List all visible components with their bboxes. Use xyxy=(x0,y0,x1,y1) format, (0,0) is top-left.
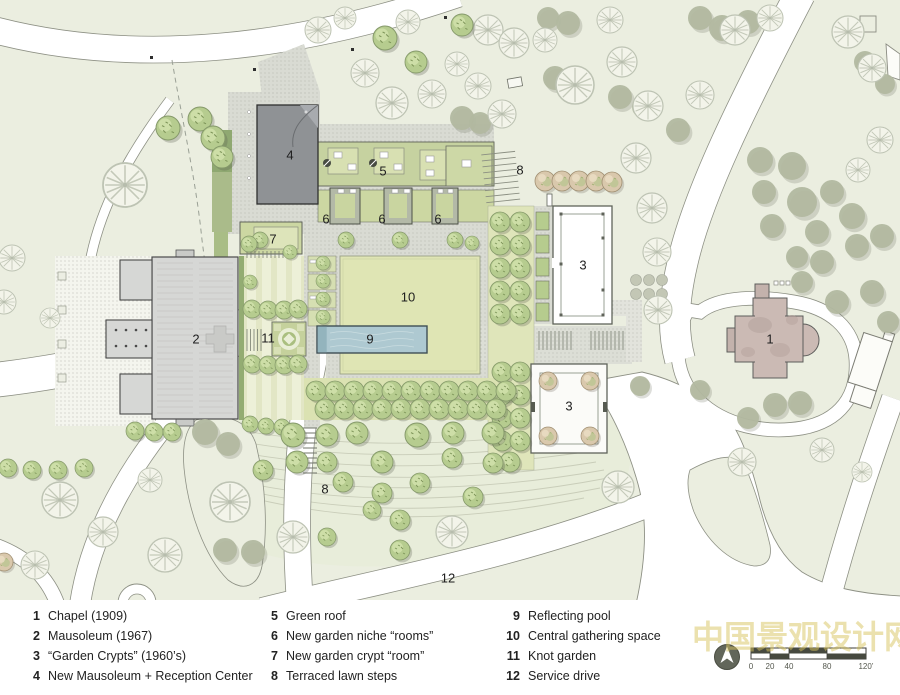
plan-marker-pool: 9 xyxy=(366,333,373,346)
plan-marker-crypt-room: 7 xyxy=(269,233,276,246)
legend-item-gathering: 10Central gathering space xyxy=(502,626,661,646)
legend-label: New garden crypt “room” xyxy=(286,649,424,663)
legend-item-crypt-room: 7New garden crypt “room” xyxy=(260,646,433,666)
legend-column-1: 1Chapel (1909) 2Mausoleum (1967) 3“Garde… xyxy=(22,606,253,686)
plan-marker-mausoleum: 2 xyxy=(192,333,199,346)
legend-label: Mausoleum (1967) xyxy=(48,629,152,643)
legend-label: Service drive xyxy=(528,669,600,683)
legend-label: New garden niche “rooms” xyxy=(286,629,433,643)
legend-label: Green roof xyxy=(286,609,346,623)
knot-garden xyxy=(272,322,306,356)
plan-marker-garden-crypts-upper: 3 xyxy=(579,259,586,272)
legend-num: 4 xyxy=(22,669,40,683)
plan-marker-green-roof: 5 xyxy=(379,165,386,178)
scale-tick-40: 40 xyxy=(785,662,794,671)
legend-column-2: 5Green roof 6New garden niche “rooms” 7N… xyxy=(260,606,433,686)
legend-item-green-roof: 5Green roof xyxy=(260,606,433,626)
scale-tick-120: 120’ xyxy=(858,662,873,671)
legend-num: 2 xyxy=(22,629,40,643)
legend-item-new-mausoleum: 4New Mausoleum + Reception Center xyxy=(22,666,253,686)
legend-label: Knot garden xyxy=(528,649,596,663)
legend-num: 11 xyxy=(502,649,520,663)
legend-label: New Mausoleum + Reception Center xyxy=(48,669,253,683)
site-plan-page: 1 2 3 3 4 5 6 6 6 7 8 8 9 10 11 12 1Chap… xyxy=(0,0,900,695)
watermark: 中国景观设计网 xyxy=(692,612,900,658)
legend-num: 8 xyxy=(260,669,278,683)
legend-num: 6 xyxy=(260,629,278,643)
plan-marker-steps-lower: 8 xyxy=(321,483,328,496)
legend-item-garden-crypts: 3“Garden Crypts” (1960’s) xyxy=(22,646,253,666)
legend-label: Reflecting pool xyxy=(528,609,611,623)
legend-num: 10 xyxy=(502,629,520,643)
legend-label: Central gathering space xyxy=(528,629,661,643)
legend-num: 1 xyxy=(22,609,40,623)
legend-column-3: 9Reflecting pool 10Central gathering spa… xyxy=(502,606,661,686)
plan-marker-new-mausoleum: 4 xyxy=(286,149,293,162)
plan-marker-garden-crypts-lower: 3 xyxy=(565,400,572,413)
legend-num: 5 xyxy=(260,609,278,623)
scale-tick-20: 20 xyxy=(766,662,775,671)
legend-item-chapel: 1Chapel (1909) xyxy=(22,606,253,626)
legend-item-knot-garden: 11Knot garden xyxy=(502,646,661,666)
scale-tick-80: 80 xyxy=(823,662,832,671)
plan-marker-chapel: 1 xyxy=(766,333,773,346)
legend-item-service-drive: 12Service drive xyxy=(502,666,661,686)
legend-num: 7 xyxy=(260,649,278,663)
legend-label: Terraced lawn steps xyxy=(286,669,397,683)
scale-tick-0: 0 xyxy=(749,662,753,671)
plan-marker-steps-upper: 8 xyxy=(516,164,523,177)
plan-marker-service-drive: 12 xyxy=(441,572,455,585)
plan-marker-knot-garden: 11 xyxy=(261,332,275,345)
legend-num: 12 xyxy=(502,669,520,683)
legend-item-lawn-steps: 8Terraced lawn steps xyxy=(260,666,433,686)
legend-item-pool: 9Reflecting pool xyxy=(502,606,661,626)
plan-marker-niche-3: 6 xyxy=(434,213,441,226)
legend-item-mausoleum: 2Mausoleum (1967) xyxy=(22,626,253,646)
site-plan-svg xyxy=(0,0,900,695)
plan-marker-niche-2: 6 xyxy=(378,213,385,226)
legend-label: Chapel (1909) xyxy=(48,609,127,623)
legend-num: 9 xyxy=(502,609,520,623)
plan-marker-gathering-space: 10 xyxy=(401,291,415,304)
plan-marker-niche-1: 6 xyxy=(322,213,329,226)
legend-label: “Garden Crypts” (1960’s) xyxy=(48,649,186,663)
legend-num: 3 xyxy=(22,649,40,663)
legend-item-niche-rooms: 6New garden niche “rooms” xyxy=(260,626,433,646)
